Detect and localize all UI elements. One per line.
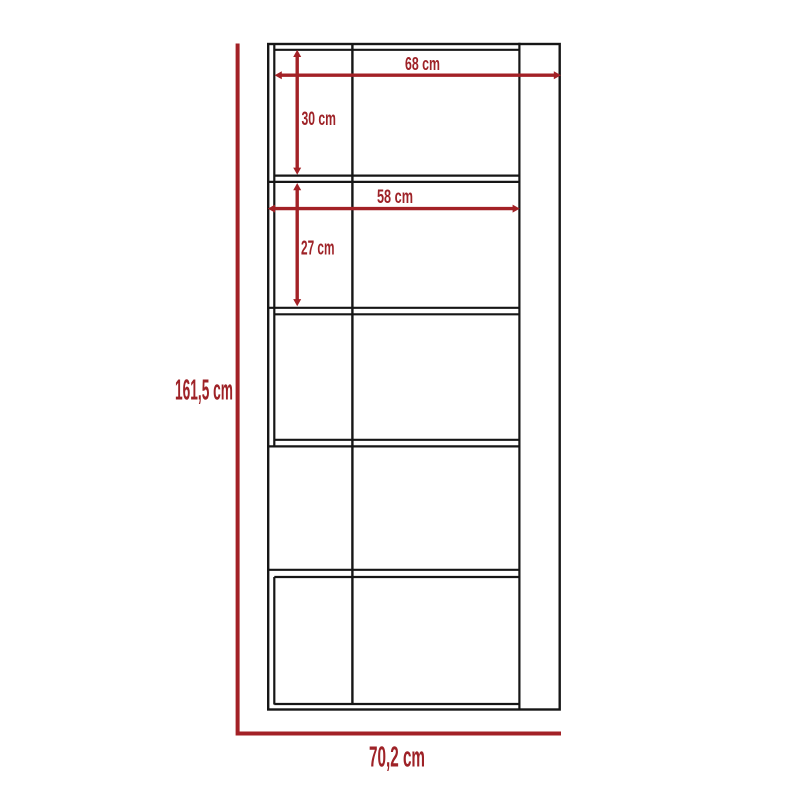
svg-text:58 cm: 58 cm — [377, 186, 413, 208]
svg-text:68 cm: 68 cm — [405, 53, 440, 74]
svg-text:70,2 cm: 70,2 cm — [369, 742, 425, 774]
svg-text:27 cm: 27 cm — [301, 237, 335, 260]
svg-text:30 cm: 30 cm — [302, 108, 337, 130]
svg-text:161,5 cm: 161,5 cm — [175, 375, 233, 407]
